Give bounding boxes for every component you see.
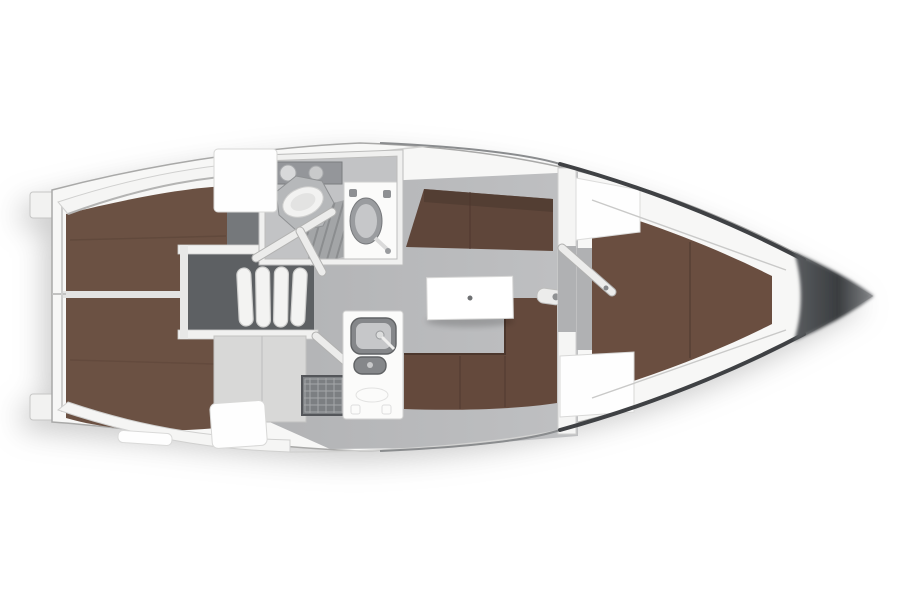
head-compartment: [256, 153, 400, 272]
step-tread: [255, 267, 270, 327]
floorplan-svg: [0, 0, 900, 600]
galley-sink-basin: [356, 323, 391, 349]
saloon-table: [427, 276, 514, 319]
cabinet-latch: [383, 190, 391, 198]
cockpit-bench: [210, 400, 268, 449]
door-handle: [604, 286, 609, 291]
washbasin-cabinet: [344, 182, 400, 262]
stove-burner-knob: [367, 362, 373, 368]
swim-step-bottom: [30, 394, 54, 420]
companionway-post: [180, 245, 188, 339]
forward-dresser: [560, 352, 634, 417]
step-tread: [273, 267, 288, 327]
shelf-item: [309, 166, 323, 180]
galley-unit: [343, 311, 403, 419]
washbasin-bowl: [355, 204, 377, 238]
step-tread: [236, 268, 253, 327]
swim-step-top: [30, 192, 54, 218]
yacht-floorplan-render: [0, 0, 900, 600]
cabinet-latch: [349, 189, 357, 197]
step-tread: [290, 268, 307, 327]
washbasin-faucet-knob: [385, 248, 391, 254]
deck-cabinet: [214, 149, 277, 212]
oven-grid: [302, 376, 349, 415]
